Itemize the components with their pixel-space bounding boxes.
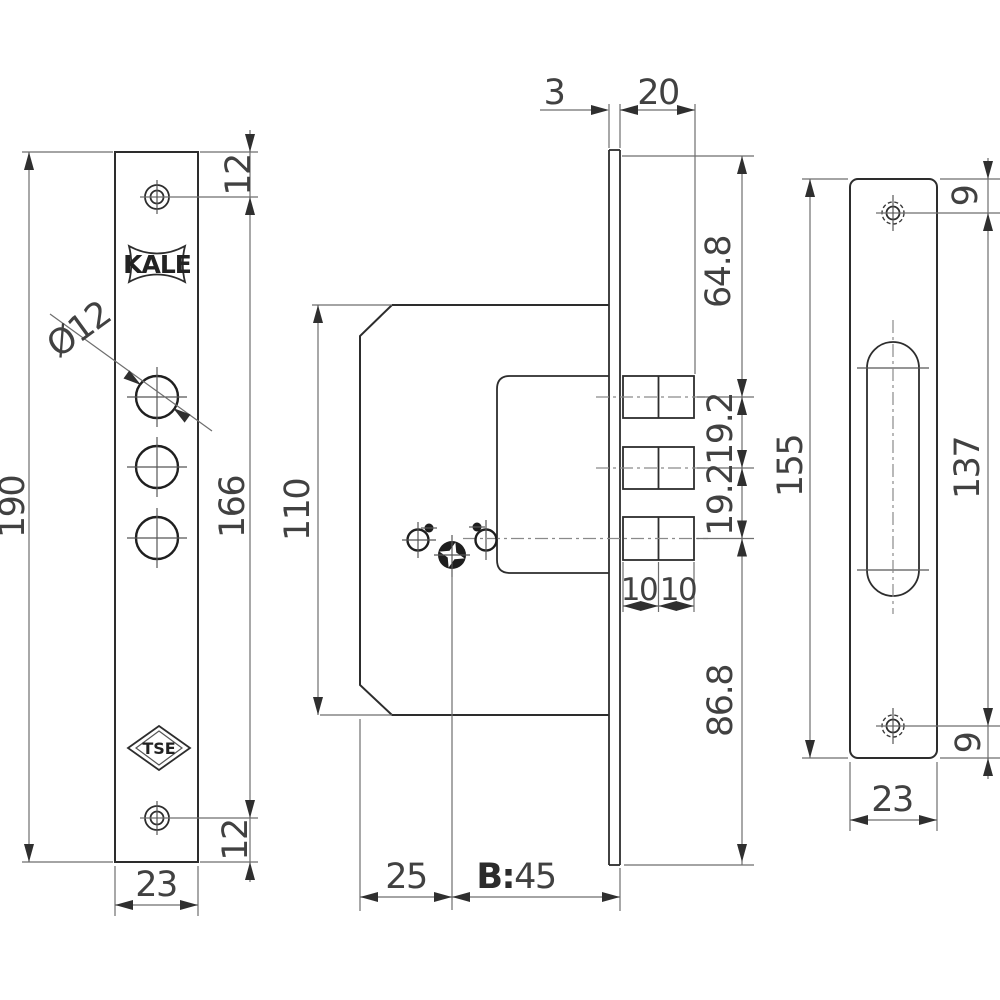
dim-backset-depth: 25 B:45	[360, 719, 620, 911]
backset-label: 25	[385, 857, 427, 897]
case-height-label: 110	[278, 479, 318, 541]
bolt-to-bottom-label: 86.8	[701, 665, 741, 737]
dim-faceplate-thickness-3: 3	[540, 73, 620, 148]
inner-case-outline	[497, 376, 609, 573]
hole-span-label: 166	[213, 476, 253, 539]
bolt-pitch2-label: 19.2	[701, 464, 741, 536]
dim-faceplate-width-23: 23	[115, 865, 198, 916]
hole-diameter-callout: Ø12	[40, 294, 212, 431]
strike-bottom-offset-label: 9	[949, 733, 989, 754]
bolt-throw-label: 20	[637, 73, 679, 113]
faceplate-thickness-label: 3	[544, 73, 565, 113]
strike-plate-view: 155 9 137 9 23	[771, 158, 1000, 831]
cylinder-holes	[127, 367, 187, 568]
kale-brand-text: KALE	[123, 250, 191, 279]
dim-hole-spacing-left: 12 166 12	[200, 130, 259, 882]
strike-width-label: 23	[871, 780, 913, 820]
bolt-pitch1-label: 19.2	[701, 393, 741, 465]
faceplate-width-label: 23	[135, 865, 177, 905]
technical-drawing-canvas: KALE Ø12 TSE	[0, 0, 1000, 1000]
top-to-bolt-label: 64.8	[699, 236, 739, 308]
case-depth-label: B:45	[476, 857, 555, 897]
case-depth-prefix: B:	[476, 857, 514, 897]
case-depth-value: 45	[514, 857, 556, 897]
faceplate-edge-strip	[609, 150, 620, 865]
kale-brand-logo: KALE	[123, 246, 191, 282]
dim-bolt-position-chain: 64.8 19.2 19.2 86.8	[622, 156, 754, 865]
total-height-label: 190	[0, 476, 33, 538]
dim-case-height-110: 110	[278, 305, 392, 715]
dim-strike-height-155: 155	[771, 179, 848, 758]
tse-cert-text: TSE	[142, 739, 175, 758]
dim-strike-hole-spacing: 9 137 9	[940, 158, 1000, 779]
dim-bolt-throw-20: 20	[620, 73, 695, 374]
top-offset-label: 12	[219, 154, 259, 196]
lock-case-side-view: 3 20 64.8 19.2 19.	[278, 73, 754, 911]
case-body-outline	[360, 305, 609, 715]
bolt-half1-label: 10	[621, 572, 657, 608]
dim-strike-width-23: 23	[850, 762, 937, 831]
deadbolts	[463, 376, 708, 560]
bolt-half2-label: 10	[660, 572, 696, 608]
latch-slot	[857, 320, 929, 614]
dim-total-height-190: 190	[0, 152, 113, 862]
bottom-offset-label: 12	[216, 819, 256, 861]
lock-technical-drawing: KALE Ø12 TSE	[0, 0, 1000, 1000]
tse-certification-logo: TSE	[128, 726, 190, 770]
faceplate-front-view: KALE Ø12 TSE	[0, 130, 259, 916]
dim-bolt-halves-10-10: 10 10	[621, 562, 696, 612]
strike-top-offset-label: 9	[946, 186, 986, 207]
strike-height-label: 155	[771, 435, 811, 497]
strike-span-label: 137	[948, 437, 988, 499]
